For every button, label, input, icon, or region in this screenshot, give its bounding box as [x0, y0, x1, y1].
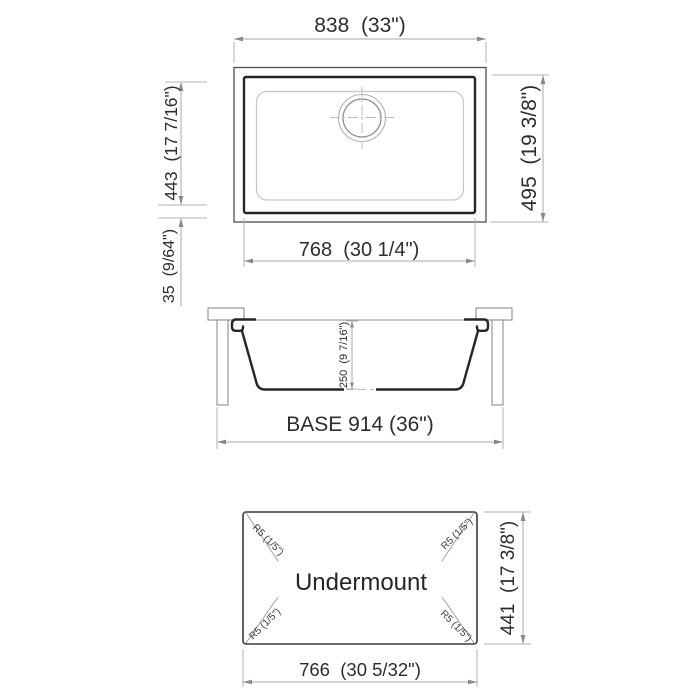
dim-base-cabinet-label: BASE 914 (36") — [286, 413, 434, 436]
dim-bowl-width-label: 768 (30 1/4") — [299, 239, 420, 261]
sink-rim-lip-left — [232, 320, 256, 331]
top-view: 838 (33") 768 (30 1/4") 443 (17 7/16") 3… — [158, 14, 549, 306]
dim-bottom-depth-label: 441 (17 3/8") — [498, 521, 519, 635]
mount-type-label: Undermount — [295, 569, 427, 596]
sink-dimension-diagram: 838 (33") 768 (30 1/4") 443 (17 7/16") 3… — [0, 0, 700, 700]
sink-spec-sheet: 838 (33") 768 (30 1/4") 443 (17 7/16") 3… — [0, 0, 700, 700]
dim-overall-depth-label: 495 (19 3/8") — [518, 85, 541, 212]
sink-rim-lip-right — [464, 320, 488, 331]
cabinet-leg-right — [492, 320, 503, 405]
countertop-right — [476, 308, 512, 320]
sink-wall-right — [376, 331, 478, 390]
section-view: 250 (9 7/16") BASE 914 (36") — [208, 308, 512, 449]
dim-bowl-height-label: 250 (9 7/16") — [338, 322, 350, 388]
dim-bottom-width-label: 766 (30 5/32") — [299, 659, 421, 680]
dim-rim-gap-label: 35 (9/64") — [161, 229, 178, 303]
dim-overall-width-label: 838 (33") — [314, 14, 406, 37]
sink-wall-left — [242, 331, 344, 390]
countertop-left — [208, 308, 244, 320]
dim-bowl-depth-label: 443 (17 7/16") — [161, 85, 181, 200]
bottom-view: R5 (1/5") R5 (1/5") R5 (1/5") R5 (1/5") … — [243, 512, 531, 687]
sink-rim-outline — [234, 68, 486, 223]
cabinet-leg-left — [217, 320, 228, 405]
